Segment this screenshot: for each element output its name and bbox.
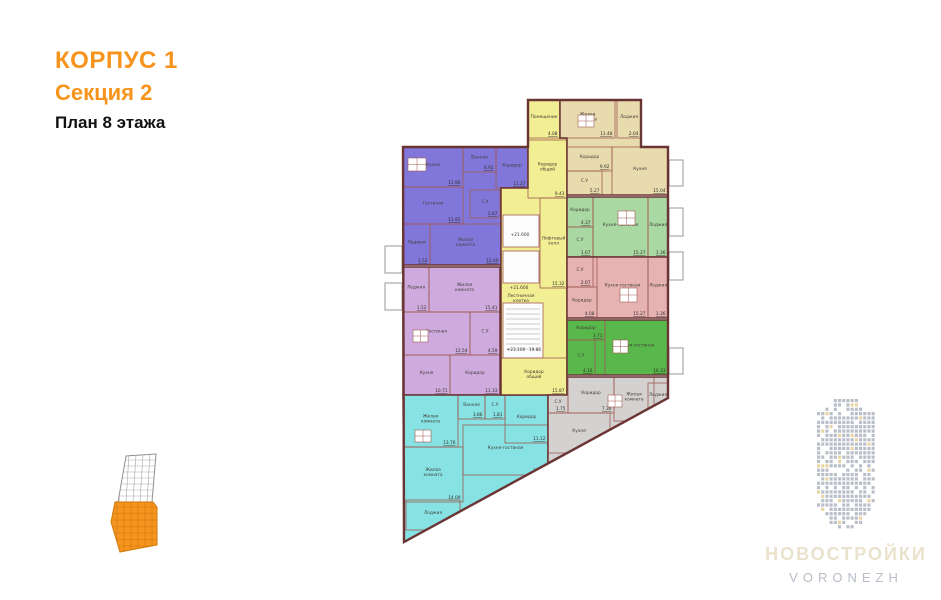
room-area: 13.05 [639, 414, 652, 420]
room-area: 4.08 [585, 311, 595, 317]
room-area: 2.04 [629, 131, 639, 137]
apartment-cyan: Жилаякомната13.76Ванная3.86С.У1.81Коридо… [403, 395, 548, 542]
room-label: Жилая [457, 282, 473, 288]
room-area: 1.52 [418, 258, 428, 264]
room-label: С.У [482, 329, 489, 335]
room-label: С.У [577, 267, 584, 273]
room-area: 4.59 [488, 348, 498, 354]
room-area: 11.48 [600, 131, 613, 137]
room-label: Коридор [465, 370, 485, 376]
room-label: общий [527, 373, 542, 380]
room-area: 15.27 [633, 311, 646, 317]
room-label: Гостиная [423, 201, 444, 207]
room-area: 11.90 [448, 180, 461, 186]
room-label: Жилая [626, 391, 642, 397]
room-area: 15.40 [486, 258, 499, 264]
room-label: Помещение [531, 114, 558, 120]
room-area: 4.08 [548, 131, 558, 137]
logo-title: НОВОСТРОЙКИ [763, 544, 929, 565]
room-label: Ванная [463, 402, 480, 408]
elevation-mark: клетка [513, 299, 529, 304]
room-area: 11.12 [533, 436, 546, 442]
room-area: 16.33 [653, 368, 666, 374]
room-label: комната [423, 473, 442, 478]
room-label: С.У [577, 237, 584, 243]
room-area: 11.27 [513, 181, 526, 187]
room-area: 13.76 [443, 440, 456, 446]
room-label: Кухня-гостиная [605, 283, 641, 289]
room-label: Лифтовый [542, 234, 566, 241]
room-label: Коридор [581, 390, 601, 396]
room-area: 13.06 [595, 446, 608, 452]
apartment-pink: С.У2.67Коридор4.08Кухня-гостиная15.27Лод… [567, 257, 668, 318]
room-label: Кухня-гостиная [488, 445, 524, 451]
room-area: 4.10 [583, 368, 593, 374]
logo-building-icon [786, 396, 906, 536]
room-label: Коридор [524, 369, 544, 375]
room-area: 12.54 [455, 348, 468, 354]
room-area: 1.67 [581, 250, 591, 256]
room-label: комната [456, 243, 475, 248]
room-label: комната [455, 288, 474, 293]
room-label: Кухня [633, 166, 647, 172]
room-area: 15.87 [552, 388, 565, 394]
room-area: 3.71 [593, 333, 603, 339]
room-area: 4.92 [484, 165, 494, 171]
room-label: Жилая [423, 413, 439, 419]
balcony-box [669, 252, 683, 280]
room-label: Коридор [572, 298, 592, 304]
room-area: 11.33 [485, 388, 498, 394]
room-area: 1.36 [656, 311, 666, 317]
elevation-mark: 19.86 [529, 347, 542, 353]
room-area: 1.36 [656, 250, 666, 256]
room-area: 15.04 [653, 188, 666, 194]
elevation-mark: +21.600 [511, 232, 530, 238]
room-label: С.У [581, 178, 588, 184]
room-label: комната [421, 420, 440, 425]
room-label: Лоджия [649, 392, 667, 398]
balcony-box [669, 348, 683, 374]
room-area: 9.92 [600, 164, 610, 170]
room-area: 15.27 [633, 250, 646, 256]
page: КОРПУС 1 Секция 2 План 8 этажа Кухня11.9… [0, 0, 941, 600]
room-area: 10.71 [435, 388, 448, 394]
balcony-box [669, 208, 683, 236]
balcony-box [669, 160, 683, 186]
room-area: 1.75 [556, 406, 566, 412]
minimap-current-section [111, 502, 157, 552]
room-area: 1.52 [417, 305, 427, 311]
room-area: 15.41 [485, 305, 498, 311]
room [503, 251, 539, 283]
room-label: Коридор [576, 325, 596, 331]
room-label: С.У [482, 199, 489, 205]
room-label: Жилая [425, 467, 441, 473]
room-area: 8.25 [448, 523, 458, 529]
elevation-mark: Лестничная [508, 293, 535, 299]
room-label: Лоджия [407, 240, 425, 246]
room-label: Кухня [420, 370, 434, 376]
elevation-mark: +23.100 [507, 347, 526, 353]
room-area: 9.43 [555, 191, 565, 197]
room-label: Ванная [471, 155, 488, 161]
room-label: С.У [578, 353, 585, 359]
room-area: 5.27 [590, 188, 600, 194]
room-label: общий [540, 166, 555, 173]
balcony-box [385, 246, 402, 273]
room-label: комната [624, 398, 643, 403]
room-label: Коридор [502, 163, 522, 169]
room-label: Коридор [517, 414, 537, 420]
room-label: Коридор [570, 207, 590, 213]
room-label: Кухня [572, 428, 586, 434]
room-label: С.У [492, 402, 499, 408]
room-label: Коридор [538, 161, 558, 167]
apartment-lavender: Лоджия1.52Жилаякомната15.41Гостиная12.54… [403, 267, 500, 395]
room-area: 2.87 [488, 211, 498, 217]
room-area: 4.37 [581, 220, 591, 226]
room-area: 1.81 [493, 412, 503, 418]
apartment-light-green: Коридор4.37С.У1.67Кухня-гостиная15.27Лод… [567, 197, 668, 257]
room-area: 2.67 [581, 280, 591, 286]
room-label: Лоджия [620, 114, 638, 120]
room-area: 3.86 [473, 412, 483, 418]
brand-logo: НОВОСТРОЙКИ VORONEZH [763, 396, 929, 585]
room-label: Лоджия [649, 222, 667, 228]
room-label: Лоджия [649, 283, 667, 289]
balcony-box [385, 283, 402, 310]
room-label: Лоджия [424, 510, 442, 516]
room-label: С.У [555, 399, 562, 405]
room-label: Коридор [580, 154, 600, 160]
elevation-mark: +21.600 [510, 285, 529, 291]
room-label: Лоджия [407, 285, 425, 291]
room-label: Гостиная [426, 329, 447, 335]
room [503, 215, 539, 247]
room-area: 15.32 [552, 281, 565, 287]
logo-subtitle: VORONEZH [763, 570, 929, 585]
room-area: 11.95 [448, 217, 461, 223]
apartment-green: Коридор3.71С.У4.10Кухня-гостиная16.33 [567, 320, 668, 375]
section-minimap [100, 452, 170, 560]
room-label: Кухня [426, 162, 440, 168]
room-label: Жилая [458, 237, 474, 243]
room-label: холл [548, 242, 559, 247]
